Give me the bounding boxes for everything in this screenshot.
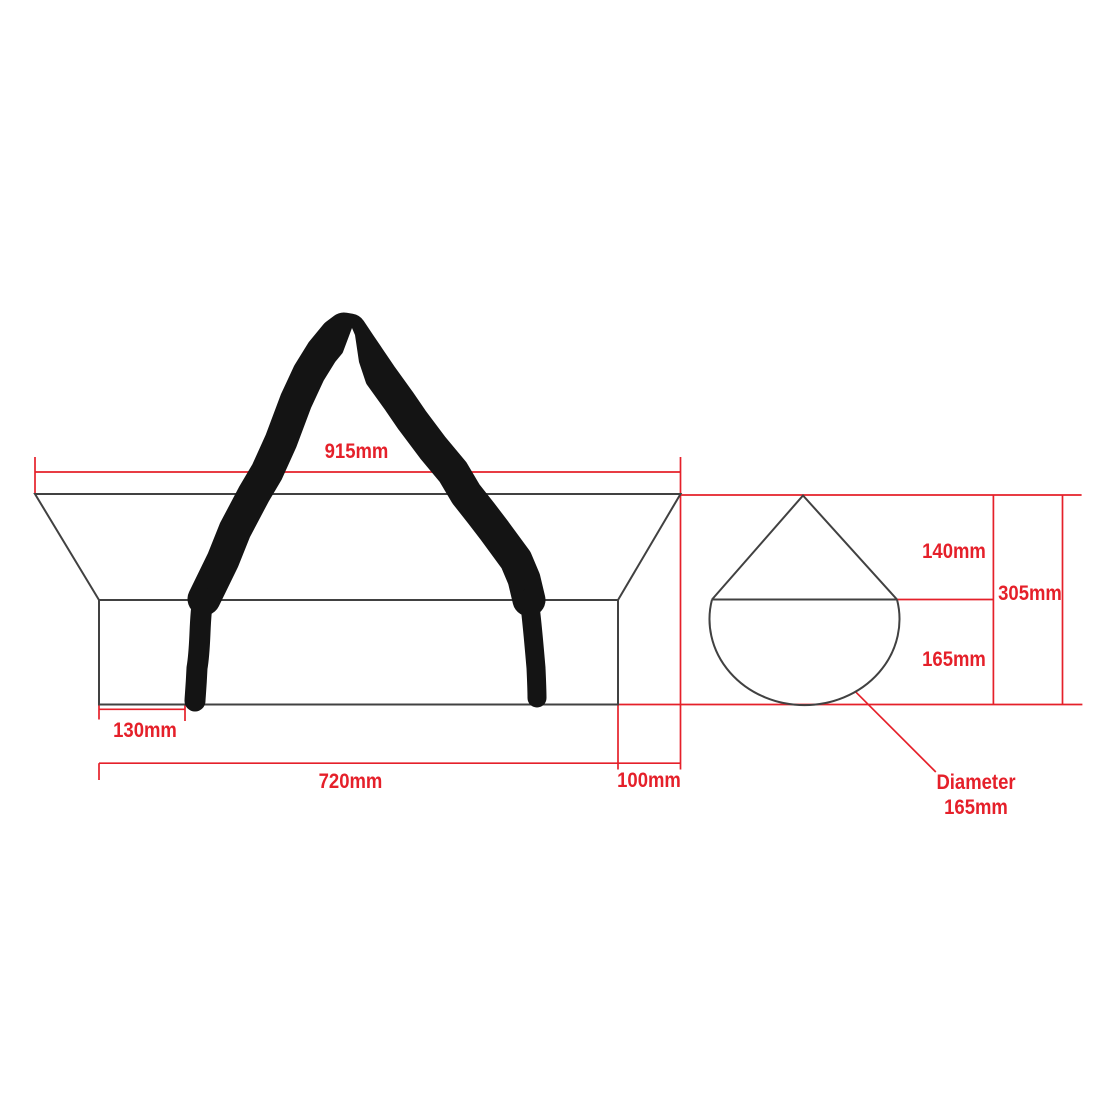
svg-text:130mm: 130mm (113, 719, 177, 743)
svg-text:165mm: 165mm (922, 648, 986, 672)
svg-text:140mm: 140mm (922, 540, 986, 564)
svg-text:915mm: 915mm (325, 440, 389, 464)
svg-text:305mm: 305mm (998, 582, 1062, 606)
svg-text:720mm: 720mm (319, 770, 383, 794)
svg-text:Diameter: Diameter (936, 771, 1015, 795)
svg-text:100mm: 100mm (617, 769, 681, 793)
svg-text:165mm: 165mm (944, 796, 1008, 820)
